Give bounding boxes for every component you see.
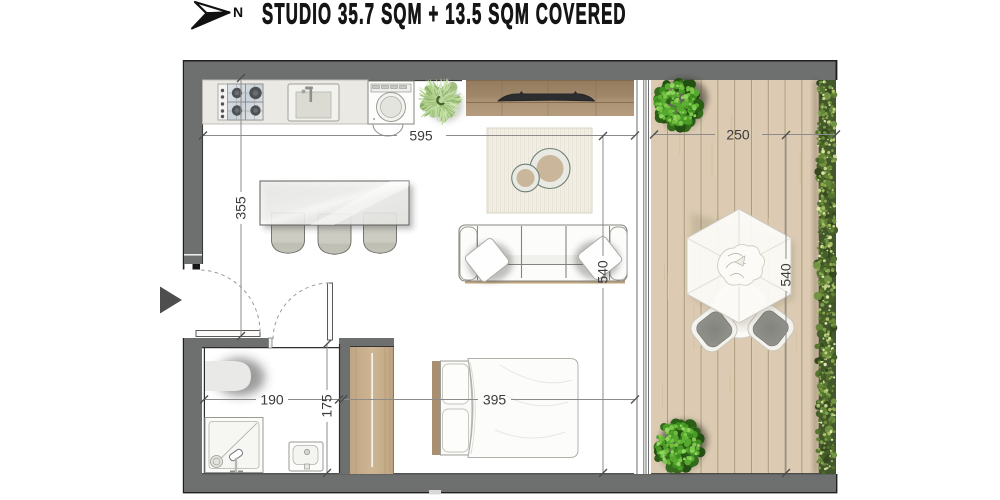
svg-text:595: 595 [409,128,433,144]
svg-text:395: 395 [483,392,507,408]
svg-text:N: N [233,4,243,20]
svg-text:355: 355 [233,196,249,220]
svg-text:540: 540 [595,260,611,284]
svg-text:250: 250 [726,127,750,143]
svg-text:STUDIO 35.7 SQM + 13.5 SQM COV: STUDIO 35.7 SQM + 13.5 SQM COVERED [262,0,627,31]
svg-text:540: 540 [778,263,794,287]
svg-text:175: 175 [319,394,335,418]
svg-text:190: 190 [260,392,284,408]
